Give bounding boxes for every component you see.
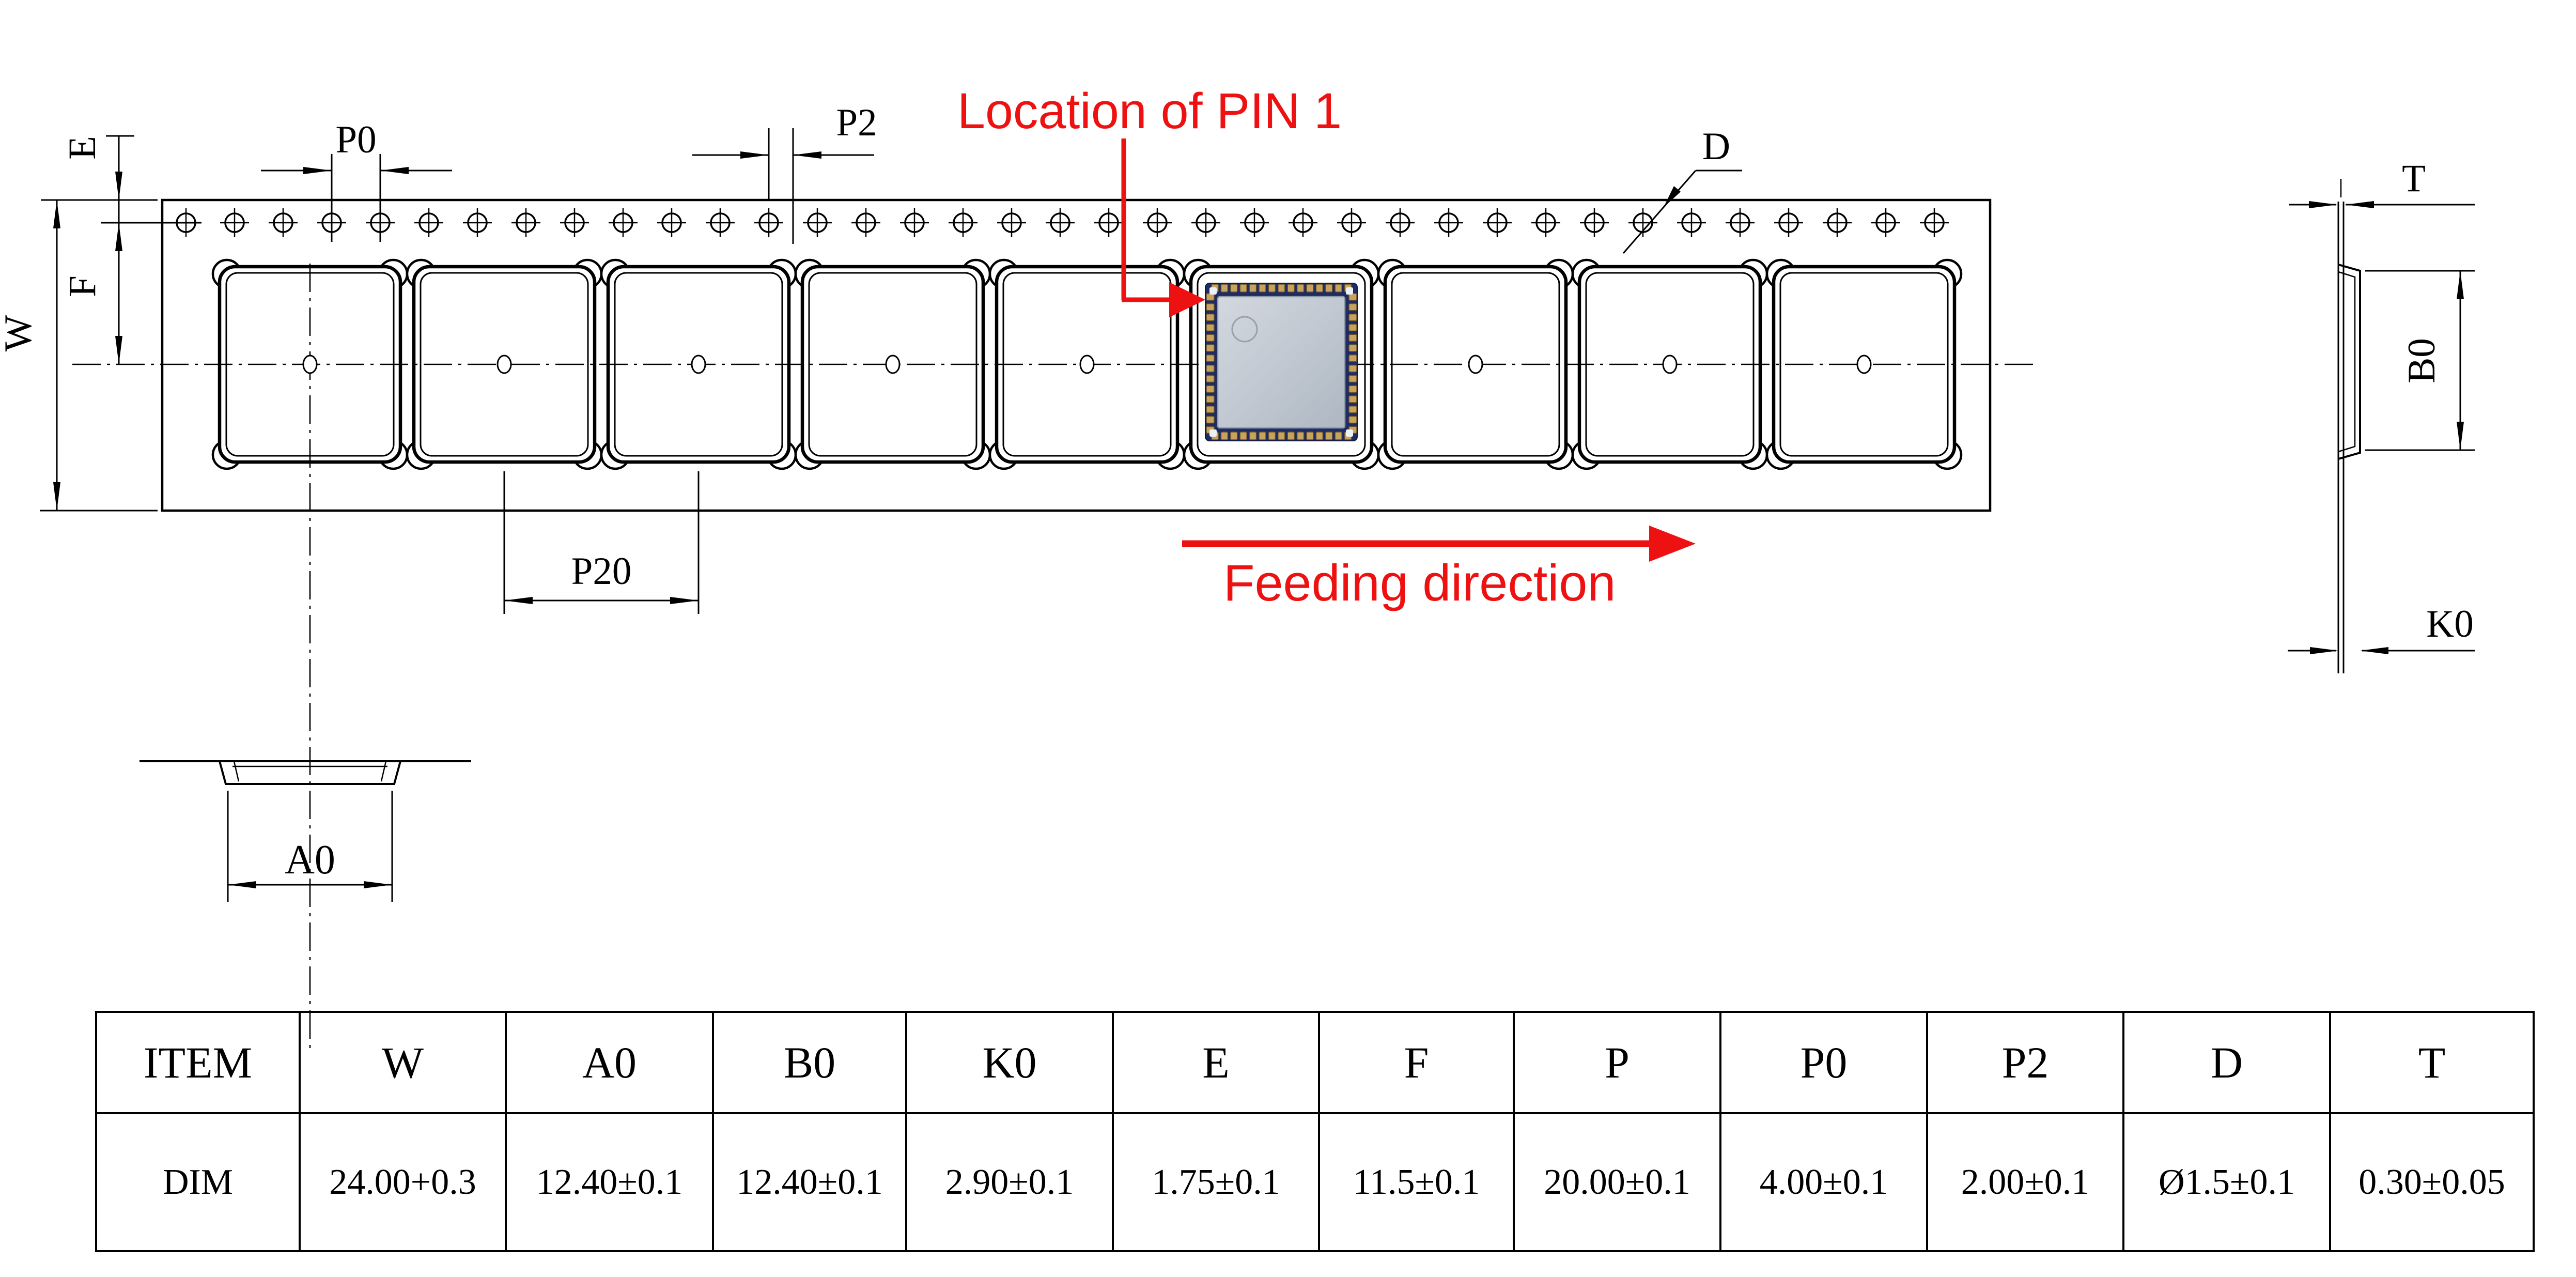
table-header-b0: B0 [713, 1012, 906, 1113]
sprocket-hole [414, 208, 443, 237]
dimension-table: ITEMWA0B0K0EFPP0P2DTDIM24.00+0.312.40±0.… [95, 1011, 2533, 1250]
sprocket-hole [1823, 208, 1852, 237]
a0-section-view: A0 [139, 761, 471, 902]
table-value-f: 11.5±0.1 [1319, 1113, 1514, 1251]
table-header-d: D [2123, 1012, 2330, 1113]
module-pin [1231, 432, 1237, 440]
module-pin [1206, 375, 1214, 382]
module-pin [1240, 432, 1247, 440]
sprocket-hole [900, 208, 929, 237]
module-pin [1206, 396, 1214, 403]
a0-label: A0 [285, 837, 335, 883]
module-pin [1349, 324, 1357, 331]
module-pin [1349, 334, 1357, 341]
sprocket-hole [609, 208, 638, 237]
sprocket-hole [1628, 208, 1657, 237]
table-value-p: 20.00±0.1 [1514, 1113, 1720, 1251]
pocket-center-mark [1857, 356, 1871, 373]
module-pin [1206, 355, 1214, 362]
k0-label: K0 [2426, 603, 2474, 645]
sprocket-hole [851, 208, 880, 237]
sprocket-hole [1920, 208, 1949, 237]
module-pin [1240, 284, 1247, 292]
sprocket-hole [1386, 208, 1415, 237]
module-pin [1206, 324, 1214, 331]
table-value-k0: 2.90±0.1 [906, 1113, 1113, 1251]
sprocket-hole [511, 208, 540, 237]
module-pin [1206, 417, 1214, 423]
p0-label: P0 [335, 118, 376, 161]
module-pin [1206, 334, 1214, 341]
sprocket-hole [1337, 208, 1366, 237]
sprocket-hole [1483, 208, 1512, 237]
dimension-e: E [61, 136, 201, 223]
pocket-center-mark [1469, 356, 1482, 373]
module-pin [1287, 284, 1294, 292]
module-pin [1349, 417, 1357, 423]
table-value-p2: 2.00±0.1 [1927, 1113, 2123, 1251]
feeding-direction-annotation: Feeding direction [1182, 526, 1696, 611]
module-pin [1349, 365, 1357, 372]
module-pin [1278, 284, 1285, 292]
module-pin [1349, 314, 1357, 321]
module-pin [1307, 432, 1313, 440]
dimension-d: D [1623, 125, 1742, 253]
table-header-item: ITEM [96, 1012, 300, 1113]
module-pin [1250, 284, 1256, 292]
sprocket-hole [1289, 208, 1317, 237]
pocket-center-mark [886, 356, 899, 373]
feeding-arrowhead [1649, 526, 1696, 562]
sprocket-hole [269, 208, 298, 237]
module-pin [1316, 432, 1323, 440]
sprocket-hole [1726, 208, 1755, 237]
module-pin [1349, 375, 1357, 382]
module-pin [1221, 432, 1228, 440]
table-value-d: Ø1.5±0.1 [2123, 1113, 2330, 1251]
table-header-e: E [1113, 1012, 1319, 1113]
module-pin [1335, 432, 1342, 440]
dimension-p20: P20 [504, 471, 699, 614]
module-corner-mark [1209, 429, 1217, 437]
module-pin [1316, 284, 1323, 292]
w-label: W [0, 315, 40, 351]
module-pin [1278, 432, 1285, 440]
module-pin [1250, 432, 1256, 440]
pin1-text: Location of PIN 1 [957, 83, 1342, 139]
table-header-p0: P0 [1720, 1012, 1927, 1113]
sprocket-hole [560, 208, 589, 237]
table-value-w: 24.00+0.3 [300, 1113, 506, 1251]
module-pin [1349, 406, 1357, 413]
sprocket-hole [706, 208, 735, 237]
table-value-p0: 4.00±0.1 [1720, 1113, 1927, 1251]
table-header-k0: K0 [906, 1012, 1113, 1113]
module-corner-mark [1346, 429, 1353, 437]
dimension-w: W [0, 200, 158, 511]
sprocket-hole [1434, 208, 1463, 237]
module-pin [1206, 386, 1214, 392]
sprocket-hole [1143, 208, 1172, 237]
table-value-a0: 12.40±0.1 [506, 1113, 713, 1251]
sprocket-hole [463, 208, 492, 237]
sprocket-hole [1240, 208, 1269, 237]
table-header-t: T [2330, 1012, 2534, 1113]
module-pin [1221, 284, 1228, 292]
table-header-f: F [1319, 1012, 1514, 1113]
spec-table: ITEMWA0B0K0EFPP0P2DTDIM24.00+0.312.40±0.… [95, 1011, 2535, 1252]
module-pin [1206, 304, 1214, 311]
table-row: DIM24.00+0.312.40±0.112.40±0.12.90±0.11.… [96, 1113, 2534, 1251]
sprocket-hole [1046, 208, 1075, 237]
sprocket-hole [657, 208, 686, 237]
table-header-a0: A0 [506, 1012, 713, 1113]
carrier-tape-engineering-drawing: W E F P0 P2 P20 [0, 0, 2576, 1277]
sprocket-hole [1191, 208, 1220, 237]
module-pin [1259, 432, 1266, 440]
module-pin [1206, 314, 1214, 321]
sprocket-hole [1774, 208, 1803, 237]
pocket-center-mark [692, 356, 705, 373]
module-pin [1231, 284, 1237, 292]
component-module [1205, 283, 1357, 441]
module-pin [1287, 432, 1294, 440]
module-corner-mark [1209, 287, 1217, 295]
module-pin [1206, 345, 1214, 351]
module-pin [1349, 355, 1357, 362]
sprocket-hole [1871, 208, 1900, 237]
module-pin [1268, 284, 1275, 292]
pocket-center-mark [1080, 356, 1094, 373]
dimension-f: F [61, 223, 122, 364]
pocket-center-mark [1663, 356, 1677, 373]
module-pin [1297, 284, 1304, 292]
module-pin [1268, 432, 1275, 440]
sprocket-hole [949, 208, 977, 237]
sprocket-hole [754, 208, 783, 237]
module-pin [1307, 284, 1313, 292]
module-pin [1335, 284, 1342, 292]
sprocket-hole [997, 208, 1026, 237]
sprocket-hole [1531, 208, 1560, 237]
module-pin [1297, 432, 1304, 440]
side-view: T B0 K0 [2288, 157, 2475, 673]
module-pin [1259, 284, 1266, 292]
table-value-t: 0.30±0.05 [2330, 1113, 2534, 1251]
module-pin [1206, 365, 1214, 372]
module-pin [1349, 396, 1357, 403]
module-corner-mark [1346, 287, 1353, 295]
module-pin [1349, 345, 1357, 351]
module-pin [1326, 432, 1332, 440]
e-label: E [61, 136, 104, 160]
module-pin [1349, 304, 1357, 311]
t-label: T [2402, 157, 2426, 200]
sprocket-hole [220, 208, 249, 237]
sprocket-hole [803, 208, 832, 237]
table-value-e: 1.75±0.1 [1113, 1113, 1319, 1251]
module-pin [1326, 284, 1332, 292]
table-header-p2: P2 [1927, 1012, 2123, 1113]
module-pin [1349, 386, 1357, 392]
module-pin [1206, 406, 1214, 413]
sprocket-holes [172, 208, 1949, 237]
module-shield [1218, 297, 1345, 428]
p20-label: P20 [571, 550, 632, 593]
sprocket-hole [1677, 208, 1706, 237]
sprocket-hole [1094, 208, 1123, 237]
f-label: F [61, 275, 104, 297]
b0-label: B0 [2400, 338, 2443, 383]
table-row-label: DIM [96, 1113, 300, 1251]
table-value-b0: 12.40±0.1 [713, 1113, 906, 1251]
pocket-center-mark [498, 356, 511, 373]
d-label: D [1702, 125, 1730, 168]
pocket-center-mark [303, 356, 317, 373]
sprocket-hole [1580, 208, 1609, 237]
p2-label: P2 [836, 101, 877, 144]
table-header-w: W [300, 1012, 506, 1113]
table-header-p: P [1514, 1012, 1720, 1113]
feeding-text: Feeding direction [1223, 554, 1616, 611]
